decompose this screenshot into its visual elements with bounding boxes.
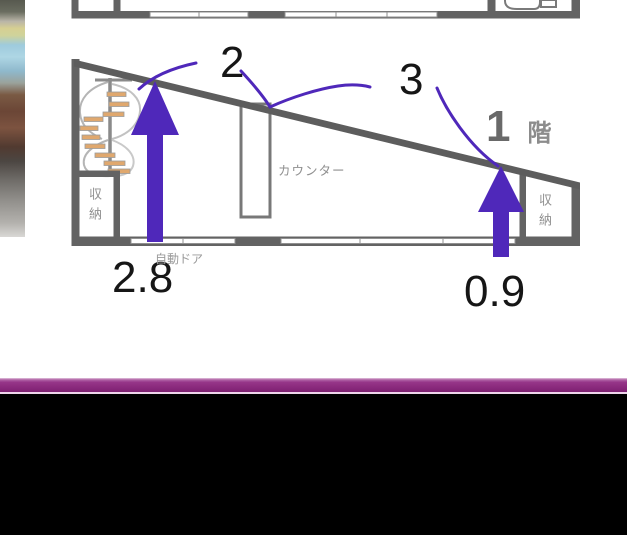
annotation-label-2: 2 bbox=[220, 41, 244, 85]
floor-suffix: 階 bbox=[527, 122, 551, 146]
counter bbox=[241, 104, 270, 217]
letterbox-footer bbox=[0, 394, 627, 535]
leader-curve-2-right bbox=[241, 71, 370, 107]
floor-number: 1 bbox=[486, 105, 510, 149]
storage-label-left: 収納 bbox=[88, 187, 101, 227]
toilet-fixture bbox=[505, 0, 556, 9]
height-arrow-left bbox=[131, 81, 179, 242]
automatic-door bbox=[131, 239, 235, 244]
annotation-label-3: 3 bbox=[399, 58, 423, 102]
auto-door-label: 自動ドア bbox=[155, 253, 203, 265]
floor-title: 1 階 bbox=[486, 105, 551, 149]
counter-label: カウンター bbox=[278, 165, 346, 178]
screenshot-canvas: 2 3 2.8 0.9 1 階 カウンター 収納 収納 自動ドア bbox=[0, 0, 627, 535]
bottom-window-strip bbox=[281, 239, 515, 244]
upper-floor-wall bbox=[72, 0, 581, 19]
height-value-right: 0.9 bbox=[464, 270, 525, 314]
storage-label-right: 収納 bbox=[538, 193, 551, 233]
separator-bar bbox=[0, 378, 627, 392]
upper-window-strip bbox=[150, 12, 437, 17]
spiral-staircase bbox=[80, 78, 140, 176]
